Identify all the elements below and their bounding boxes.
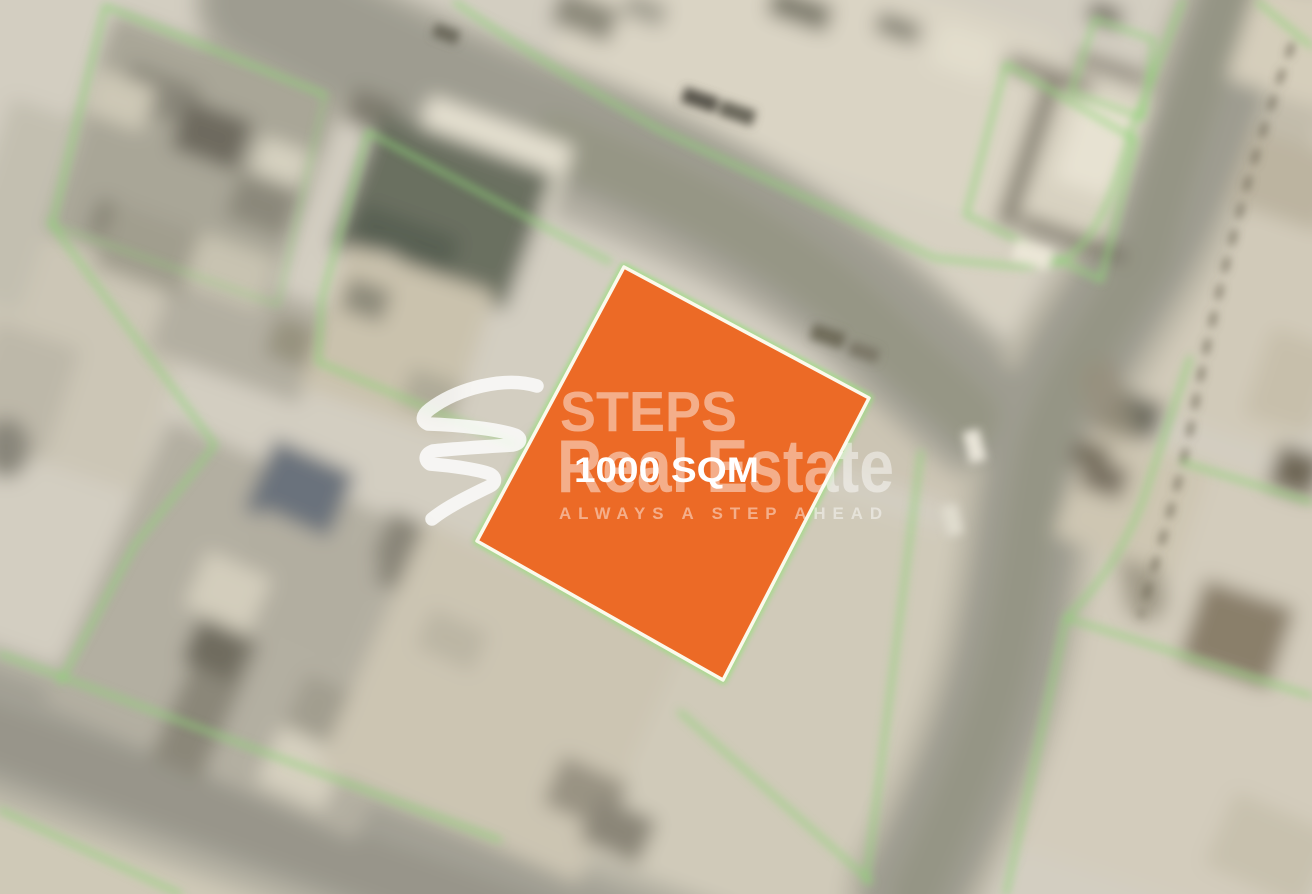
svg-text:1000 SQM: 1000 SQM [574, 451, 759, 490]
svg-text:ALWAYS A STEP AHEAD: ALWAYS A STEP AHEAD [559, 504, 889, 523]
